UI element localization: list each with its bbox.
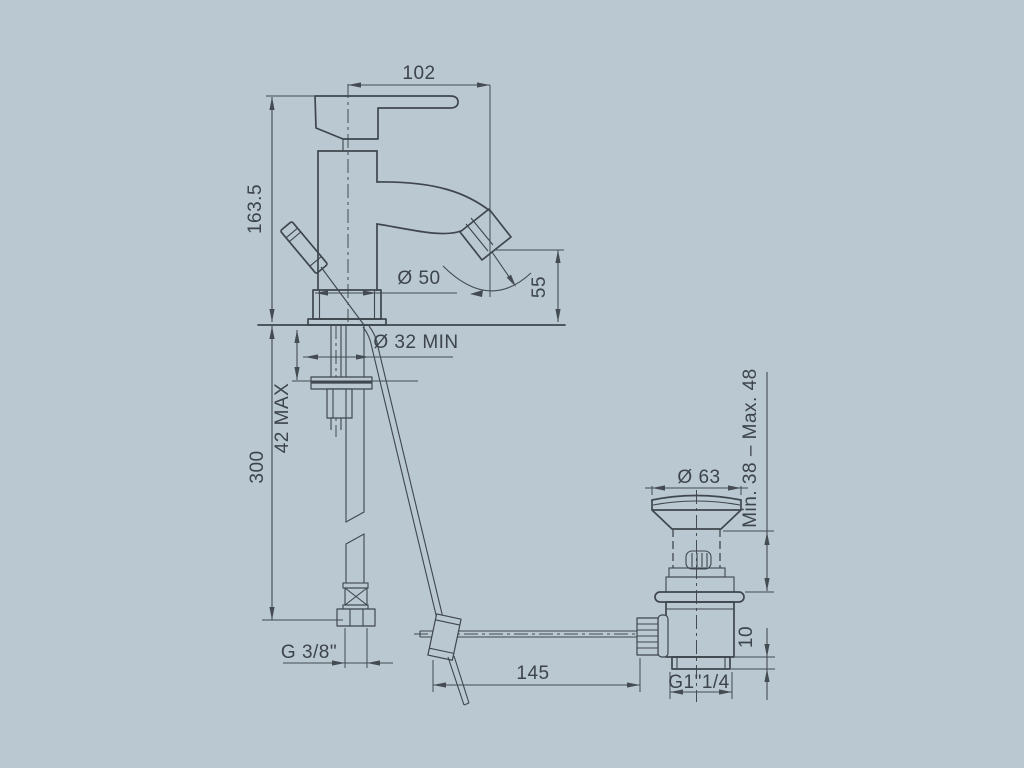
spout-swivel-arc [443,252,531,297]
dim-arrow [764,644,769,657]
dim-clamp-range-label: Min. 38 – Max. 48 [740,368,761,528]
dim-height-label: 163.5 [245,184,266,234]
dim-height: 163.5 [245,96,316,322]
dim-arrow [433,682,446,687]
dim-arrow [294,330,299,343]
drain-locknut [655,568,744,602]
dim-arrow [652,485,665,490]
dim-arrow [627,682,640,687]
technical-drawing: 102 163.5 55 Ø 50 Ø 32 MIN 42 MAX [0,0,1024,768]
dim-arrow [356,354,369,359]
extension-line [731,657,775,669]
dim-body-diameter: Ø 50 [315,268,457,296]
dim-spout-reach: 102 [348,63,490,297]
dim-drain-diameter-label: Ø 63 [677,467,720,488]
dim-hole-diameter: Ø 32 MIN [303,332,459,360]
hose-lower-section [346,534,364,583]
dim-arrow [269,309,274,322]
dim-arrow [294,367,299,380]
arc-arrow [470,290,483,297]
dim-hose-length-label: 300 [247,450,268,483]
linkage-tee [428,614,461,660]
dim-drain-thread: G1"1/4 [668,672,732,699]
base-flange [308,290,386,325]
dim-tail-height-label: 10 [736,626,757,648]
dim-arrow [555,250,560,263]
linkage-rod-upper [369,326,443,618]
dim-arrow [477,82,490,87]
dim-arrow [555,309,560,322]
linkage-rod-lower [448,656,469,705]
pop-up-linkage [363,326,660,705]
dim-arrow [269,607,274,620]
pull-rod-axis [321,267,364,325]
drain-body [666,602,734,657]
dim-outlet-height-label: 55 [529,276,550,298]
hose-upper-section [346,325,364,522]
dim-arrow [764,532,769,545]
supply-hose [337,325,375,626]
dim-body-diameter-label: Ø 50 [397,268,440,289]
dim-drain-thread-label: G1"1/4 [668,672,730,693]
dim-arrow [269,97,274,110]
hose-nut [337,609,375,626]
drain-linkage-nut [637,615,668,657]
dim-arrow [305,354,318,359]
drain-tailpiece [672,657,730,669]
dim-arrow [269,326,274,339]
dim-tail-height: 10 [731,626,775,700]
drain-assembly [637,490,744,702]
dim-hose-thread: G 3/8" [281,628,393,668]
dim-hose-thread-label: G 3/8" [281,642,337,663]
dim-arrow [764,578,769,591]
extension-line [345,628,367,668]
dim-arrow [367,660,380,665]
dim-outlet-height: 55 [494,250,564,322]
dim-clamp-range: Min. 38 – Max. 48 [723,368,774,592]
handle-lever [315,96,458,151]
overflow-slot [686,551,711,569]
dim-arrow [348,82,361,87]
dim-rod-length-label: 145 [516,663,549,684]
pull-rod-knob [280,221,327,274]
dim-spout-reach-label: 102 [402,63,435,84]
linkage-rod-upper [363,327,437,619]
aerator [460,209,511,260]
dim-arrow [764,669,769,682]
spout [377,182,511,260]
mounting-washer-nut [311,377,372,418]
dim-arrow [315,290,328,295]
dim-hose-length: 300 [247,326,343,620]
dim-hole-diameter-label: Ø 32 MIN [373,332,458,353]
dim-deck-thickness-label: 42 MAX [272,383,293,454]
